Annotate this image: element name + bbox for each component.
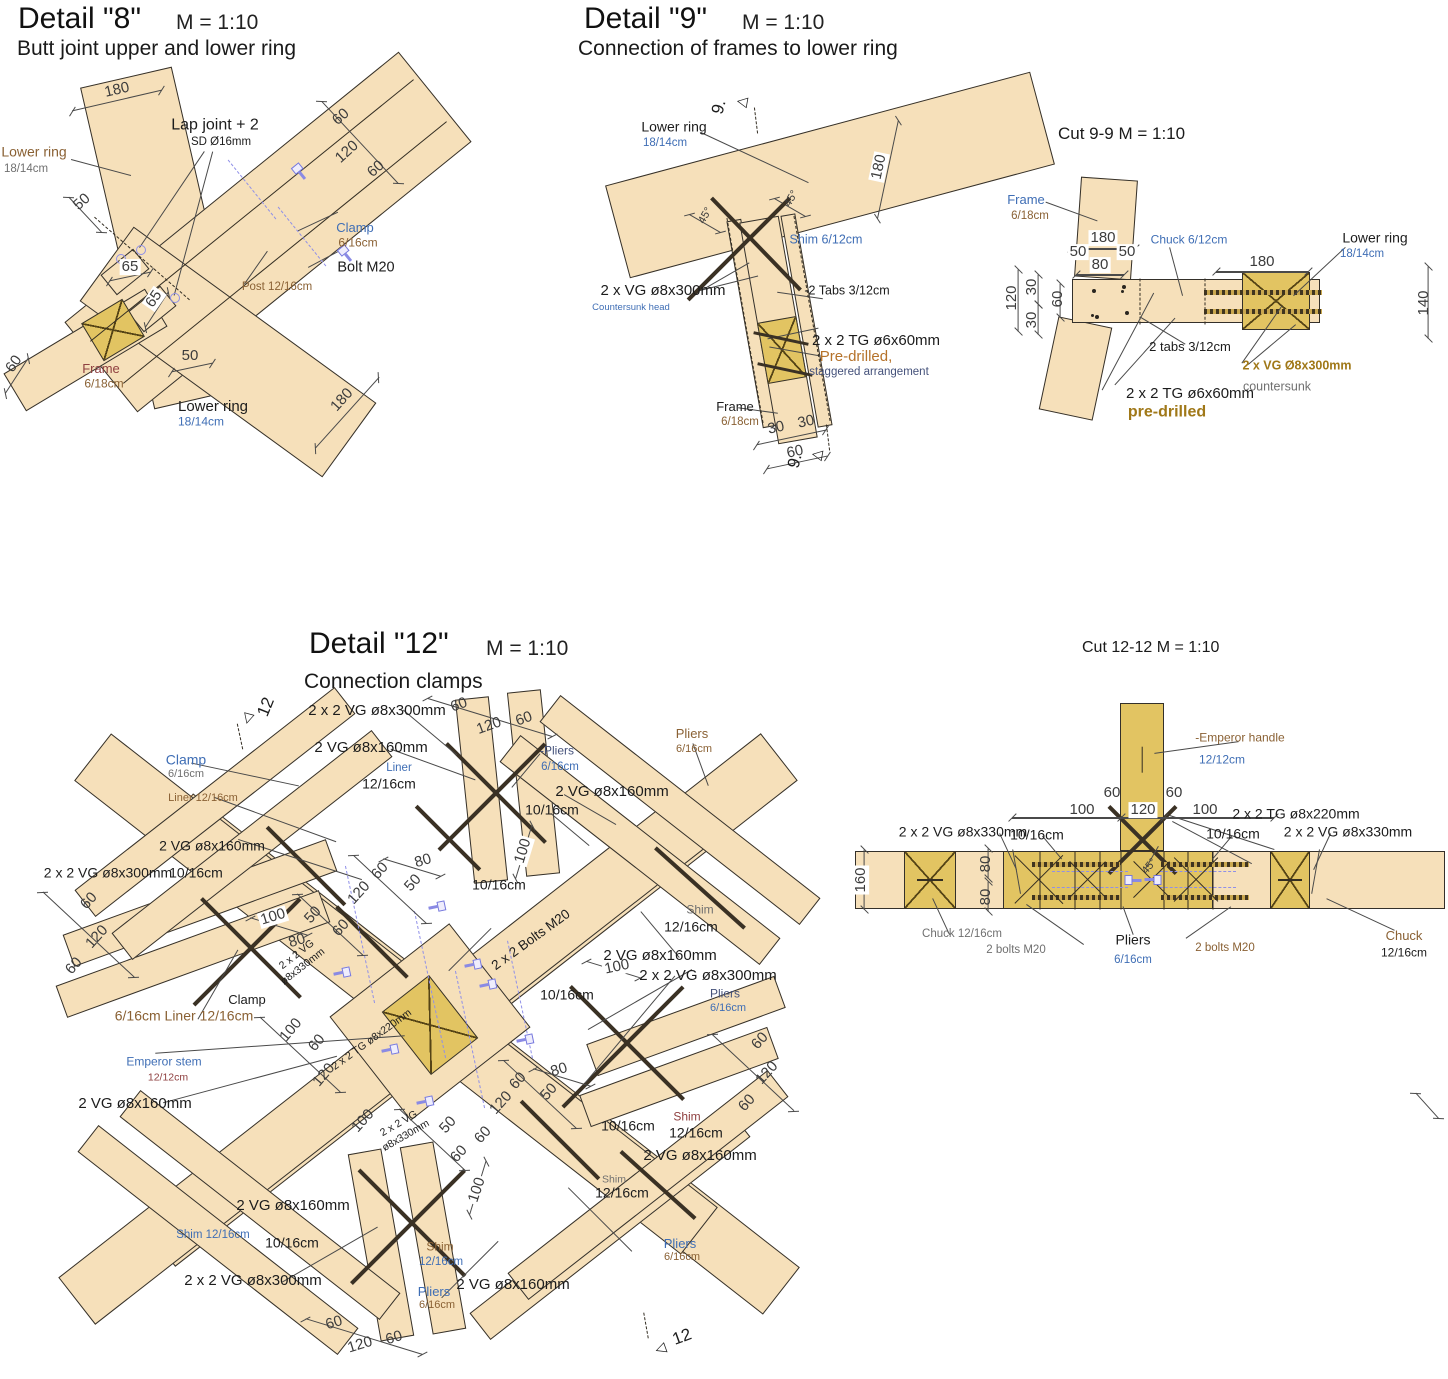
- annotation-label: 6/18cm: [84, 378, 123, 391]
- annotation-label: Frame: [716, 400, 754, 414]
- dimension-tick: [314, 443, 316, 454]
- annotation-label: 6/18cm: [1011, 210, 1049, 222]
- drawing-line: [1076, 274, 1124, 275]
- annotation-label: 2 x 2 VG ø8x300mm: [184, 1273, 322, 1289]
- screw-hatch: [1204, 309, 1322, 314]
- annotation-label: 6/16cm: [419, 1300, 455, 1312]
- dimension-label: 60: [448, 1143, 471, 1166]
- dimension-label: 60: [1050, 291, 1066, 308]
- annotation-label: Pliers: [418, 1285, 451, 1299]
- timber-beam: [605, 72, 1055, 279]
- dimension-tick: [753, 440, 760, 450]
- annotation-label: 2 VG ø8x160mm: [314, 740, 427, 756]
- screw-point: [1095, 315, 1099, 319]
- annotation-label: Post 12/16cm: [242, 281, 312, 293]
- drawing-line: [826, 425, 830, 451]
- drawing-line: [1188, 851, 1189, 909]
- bolt-icon: [1125, 875, 1142, 885]
- annotation-label: 6/18cm: [721, 416, 759, 428]
- dimension-label: 120: [1004, 285, 1020, 310]
- annotation-label: 18/14cm: [1340, 248, 1384, 260]
- dimension-tick: [421, 923, 432, 925]
- annotation-label: Liner 12/16cm: [168, 793, 238, 805]
- dimension-tick: [254, 1017, 265, 1019]
- drawing-line: [1205, 278, 1206, 324]
- screw-point: [1122, 285, 1126, 289]
- annotation-label: Countersunk head: [592, 303, 670, 313]
- drawing-line: [1185, 907, 1231, 940]
- annotation-label: Clamp: [336, 221, 374, 235]
- annotation-label: 6/16cm: [1114, 954, 1152, 966]
- annotation-label: 2 x 2 TG ø6x60mm: [812, 333, 940, 349]
- section-marker-label: 12: [670, 1325, 694, 1348]
- drawing-line: [1216, 271, 1308, 272]
- annotation-label: 6/16cm: [338, 237, 377, 250]
- annotation-label: 6/16cm: [676, 744, 712, 756]
- panel-scale-detail9: M = 1:10: [742, 11, 824, 35]
- annotation-label: 2 x 2 TG ø6x60mm: [1126, 386, 1254, 402]
- annotation-label: Lower ring: [178, 399, 248, 415]
- bolt-centerline: [1052, 871, 1128, 872]
- section-marker-label: 9.: [709, 98, 730, 116]
- annotation-label: 2 VG ø8x160mm: [236, 1198, 349, 1214]
- annotation-label: 2 VG ø8x160mm: [159, 839, 265, 854]
- dimension-label: 100: [1069, 802, 1094, 818]
- annotation-label: 6/16cm: [541, 761, 579, 773]
- drawing-sheet: Detail "8" M = 1:10 Butt joint upper and…: [0, 0, 1448, 1379]
- timber-block: [1003, 851, 1213, 909]
- drawing-line: [1141, 747, 1142, 773]
- dimension-label: 30: [796, 413, 816, 432]
- annotation-label: Pliers: [664, 1237, 697, 1251]
- annotation-label: Pliers: [710, 988, 740, 1001]
- screw-point: [1125, 311, 1129, 315]
- dimension-label: 30: [1024, 312, 1040, 329]
- annotation-label: 6/16cm: [710, 1003, 746, 1015]
- dimension-label: 100: [1192, 802, 1217, 818]
- bolt-centerline: [1160, 871, 1236, 872]
- annotation-label: -Pliers: [540, 745, 574, 758]
- section-marker-icon: ▷: [241, 712, 258, 726]
- annotation-label: Frame: [82, 362, 120, 376]
- dimension-tick: [292, 894, 303, 896]
- annotation-label: Shim: [673, 1111, 700, 1124]
- annotation-label: Pliers: [1115, 933, 1150, 948]
- dimension-label: 80: [978, 856, 994, 873]
- annotation-label: Shim: [426, 1241, 453, 1254]
- annotation-label: Chuck 6/12cm: [1151, 234, 1228, 247]
- annotation-label: 10/16cm: [1010, 828, 1064, 843]
- annotation-label: 2 x 2 VG ø8x330mm: [899, 825, 1027, 840]
- annotation-label: 2 bolts M20: [986, 944, 1045, 956]
- dimension-label: 80: [413, 851, 434, 871]
- drill-hole-icon: [170, 293, 180, 303]
- dimension-label: 180: [1249, 254, 1274, 270]
- dimension-tick: [96, 232, 107, 234]
- dimension-label: 60: [1104, 785, 1121, 801]
- screw-hatch: [1032, 862, 1120, 867]
- dimension-label: 50: [71, 191, 94, 214]
- annotation-label: 10/16cm: [1206, 827, 1260, 842]
- annotation-label: Clamp: [166, 753, 206, 768]
- annotation-label: 12/16cm: [595, 1186, 649, 1201]
- bolt-icon: [428, 900, 447, 913]
- dimension-tick: [763, 465, 770, 475]
- dimension-label: 120: [1128, 802, 1157, 818]
- section-marker-icon: ▷: [810, 448, 823, 464]
- panel-scale-detail12: M = 1:10: [486, 637, 568, 661]
- annotation-label: 2 x 2 TG ø8x220mm: [1232, 807, 1359, 822]
- timber-beam: [1038, 316, 1112, 420]
- annotation-label: 2 x 2 VG ø8x300mm: [308, 703, 446, 719]
- dimension-label: 140: [1416, 290, 1432, 315]
- annotation-label: Lower ring: [641, 120, 706, 135]
- annotation-label: 10/16cm: [525, 803, 579, 818]
- annotation-label: Clamp: [228, 993, 266, 1007]
- screw-point: [1092, 289, 1096, 293]
- dimension-label: 80: [549, 1060, 570, 1080]
- dimension-label: 180: [1088, 230, 1117, 246]
- annotation-label: pre-drilled: [1128, 405, 1206, 422]
- section-marker-icon: ▷: [653, 1341, 668, 1358]
- annotation-label: 12/16cm: [419, 1256, 463, 1268]
- annotation-label: 12/16cm: [362, 777, 416, 792]
- annotation-label: 12/16cm: [669, 1126, 723, 1141]
- annotation-label: Frame: [1007, 193, 1045, 207]
- annotation-label: Liner: [386, 762, 412, 774]
- annotation-label: 12/16cm: [664, 920, 718, 935]
- panel-title-detail12: Detail "12": [309, 627, 449, 661]
- dimension-label: 160: [853, 865, 869, 894]
- bolt-icon: [416, 1095, 435, 1108]
- annotation-label: 2 VG ø8x160mm: [555, 784, 668, 800]
- drawing-line: [1100, 851, 1101, 909]
- bolt-icon: [516, 1033, 535, 1046]
- annotation-label: SD Ø16mm: [191, 136, 251, 148]
- dimension-label: 60: [369, 860, 392, 883]
- annotation-label: Pliers: [676, 727, 709, 741]
- dimension-label: 100: [465, 1174, 489, 1206]
- annotation-label: 2 VG ø8x160mm: [603, 948, 716, 964]
- section-marker-icon: ▷: [735, 95, 748, 111]
- dimension-tick: [1410, 1092, 1421, 1094]
- annotation-label: 6/16cm Liner 12/16cm: [115, 1009, 254, 1024]
- annotation-label: 2 x VG Ø8x300mm: [1242, 359, 1351, 372]
- dimension-label: 30: [766, 419, 786, 438]
- annotation-label: 12/12cm: [148, 1072, 188, 1083]
- annotation-label: Lower ring: [1342, 231, 1407, 246]
- dimension-label: 80: [1090, 257, 1111, 273]
- annotation-label: 10/16cm: [265, 1236, 319, 1251]
- bolt-centerline: [1052, 887, 1128, 888]
- annotation-label: 2 tabs 3/12cm: [1149, 340, 1231, 354]
- dimension-label: 100: [277, 1015, 305, 1044]
- dimension-tick: [394, 1109, 405, 1111]
- drawing-line: [917, 879, 943, 880]
- screw-hatch: [1204, 290, 1322, 295]
- drill-hole-icon: [136, 245, 146, 255]
- annotation-label: Shim 6/12cm: [790, 233, 863, 246]
- annotation-label: 2 x 2 VG ø8x330mm: [1284, 825, 1412, 840]
- annotation-label: 6/16cm: [168, 769, 204, 781]
- annotation-label: 10/16cm: [169, 866, 223, 881]
- dimension-tick: [69, 106, 76, 116]
- annotation-label: Shim 12/16cm: [176, 1229, 250, 1241]
- dimension-label: 60: [1166, 785, 1183, 801]
- annotation-label: -2 Tabs 3/12cm: [804, 284, 889, 297]
- annotation-label: 2 bolts M20: [1195, 942, 1254, 954]
- dimension-label: 50: [1117, 244, 1138, 260]
- panel-scale-detail8: M = 1:10: [176, 11, 258, 35]
- annotation-label: 12/16cm: [1381, 947, 1427, 960]
- dimension-label: 60: [306, 1032, 329, 1055]
- screw-hatch: [1161, 862, 1249, 867]
- annotation-label: staggered arrangement: [809, 366, 929, 378]
- dimension-label: 60: [472, 1124, 495, 1147]
- timber-block: [1120, 703, 1164, 851]
- annotation-label: Shim: [686, 904, 713, 917]
- dimension-label: 65: [120, 259, 141, 275]
- dimension-label: 50: [182, 348, 199, 364]
- dimension-tick: [1433, 1118, 1444, 1120]
- annotation-label: 2 VG ø8x160mm: [643, 1148, 756, 1164]
- dimension-label: 30: [1024, 279, 1040, 296]
- dimension-label: 50: [437, 1114, 460, 1137]
- annotation-label: -Emperor handle: [1195, 732, 1284, 745]
- screw-hatch: [1032, 895, 1120, 900]
- annotation-label: Chuck: [1386, 929, 1423, 943]
- panel-subtitle-detail9: Connection of frames to lower ring: [578, 37, 898, 61]
- annotation-label: Emperor stem: [126, 1056, 201, 1069]
- annotation-label: 18/14cm: [178, 416, 224, 429]
- annotation-label: Chuck 12/16cm: [922, 928, 1002, 940]
- annotation-label: 2 x VG ø8x300mm: [600, 283, 725, 299]
- screw-point: [1091, 314, 1094, 317]
- annotation-label: 2 VG ø8x160mm: [78, 1096, 191, 1112]
- annotation-label: 2 x 2 VG ø8x300mm: [44, 866, 172, 881]
- annotation-label: 18/14cm: [4, 163, 48, 175]
- bolt-centerline: [1160, 887, 1236, 888]
- annotation-label: 10/16cm: [601, 1119, 655, 1134]
- drawing-line: [1415, 1093, 1439, 1119]
- annotation-label: 6/16cm: [664, 1252, 700, 1264]
- bolt-icon: [1145, 875, 1162, 885]
- timber-block: [1242, 272, 1310, 330]
- annotation-label: 18/14cm: [643, 137, 687, 149]
- panel-subtitle-detail8: Butt joint upper and lower ring: [17, 37, 296, 61]
- drawing-line: [1278, 879, 1302, 880]
- drawing-line: [643, 1313, 648, 1339]
- screw-point: [1121, 290, 1124, 293]
- annotation-label: 2 x 2 VG ø8x300mm: [639, 968, 777, 984]
- panel-title-cut12: Cut 12-12 M = 1:10: [1082, 639, 1219, 657]
- annotation-label: 10/16cm: [472, 878, 526, 893]
- annotation-label: Lower ring: [1, 145, 66, 160]
- panel-title-detail9: Detail "9": [584, 2, 707, 36]
- dimension-tick: [37, 892, 48, 894]
- dimension-label: 50: [1068, 244, 1089, 260]
- drawing-line: [754, 108, 758, 134]
- annotation-label: 2 VG ø8x160mm: [456, 1277, 569, 1293]
- dimension-label: 80: [978, 889, 994, 906]
- panel-title-detail8: Detail "8": [18, 2, 141, 36]
- annotation-label: 10/16cm: [540, 988, 594, 1003]
- drawing-line: [237, 724, 243, 750]
- annotation-label: Pre-drilled,: [820, 349, 893, 365]
- drawing-line: [1075, 851, 1076, 909]
- dimension-tick: [335, 1092, 346, 1094]
- annotation-label: Bolt M20: [337, 260, 394, 275]
- annotation-label: Lap joint + 2: [171, 118, 259, 135]
- panel-title-cut9: Cut 9-9 M = 1:10: [1058, 124, 1185, 144]
- dimension-label: 50: [402, 872, 425, 895]
- annotation-label: 12/12cm: [1199, 754, 1245, 767]
- drawing-line: [1026, 904, 1084, 945]
- dimension-tick: [788, 1110, 799, 1112]
